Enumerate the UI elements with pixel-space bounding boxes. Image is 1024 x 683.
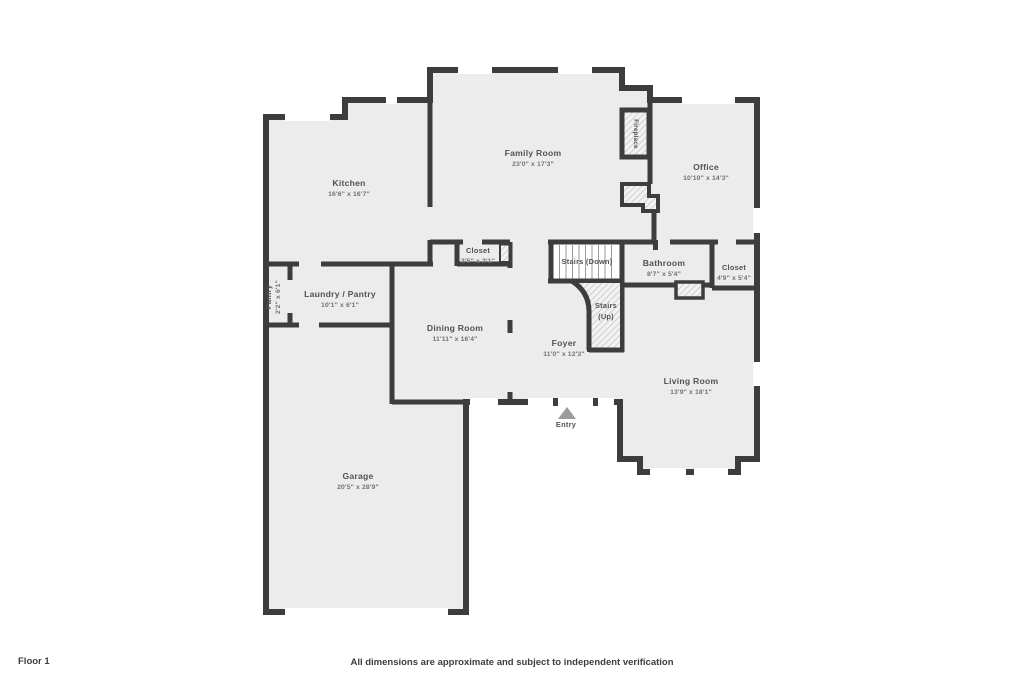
label-stairs-down: Stairs (Down)	[562, 257, 613, 266]
family-room-window-right	[558, 66, 592, 74]
label-text-fireplace: Fireplace	[632, 119, 639, 149]
kitchen-window	[285, 113, 330, 121]
label-text-bathroom: 8'7" x 5'4"	[647, 271, 681, 278]
closet-a-hatch-strip	[500, 245, 510, 263]
office-top-window	[682, 96, 735, 104]
label-text-closet-b: 4'9" x 5'4"	[717, 275, 751, 282]
entry-jamb-right	[593, 398, 598, 406]
label-fireplace: Fireplace	[632, 119, 639, 149]
label-text-pantry: 2'2" x 6'1"	[275, 280, 282, 314]
label-text-family-room: Family Room	[505, 148, 562, 158]
family-room-window-left	[458, 66, 492, 74]
office-right-window	[753, 208, 761, 233]
wall-stub-bath-door	[653, 240, 658, 250]
bathroom-hatch-box	[676, 282, 703, 298]
label-text-bathroom: Bathroom	[643, 258, 686, 268]
label-text-foyer: Foyer	[552, 338, 577, 348]
label-text-pantry: Pantry	[264, 284, 273, 309]
label-text-garage: 20'5" x 28'9"	[337, 484, 379, 491]
label-text-stairs-up: Stairs	[595, 301, 617, 310]
label-text-dining-room: Dining Room	[427, 323, 483, 333]
label-text-stairs-up: (Up)	[598, 312, 614, 321]
bay-window-left	[650, 468, 686, 476]
entry-arrow-icon	[558, 407, 576, 419]
label-text-family-room: 23'0" x 17'3"	[512, 161, 554, 168]
closet-a-door-gap	[463, 239, 482, 246]
bay-window-right	[694, 468, 728, 476]
label-text-closet-a: Closet	[466, 246, 490, 255]
label-text-dining-room: 11'11" x 16'4"	[432, 336, 477, 343]
label-text-kitchen: Kitchen	[332, 178, 365, 188]
label-text-laundry-pantry: 10'1" x 6'1"	[321, 302, 359, 309]
label-text-office: 10'10" x 14'3"	[683, 175, 729, 182]
living-right-window	[753, 362, 761, 386]
label-text-living-room: Living Room	[664, 376, 719, 386]
disclaimer-text: All dimensions are approximate and subje…	[0, 657, 1024, 668]
label-text-kitchen: 16'6" x 16'7"	[328, 191, 370, 198]
label-text-garage: Garage	[342, 471, 373, 481]
label-text-closet-b: Closet	[722, 263, 746, 272]
label-text-foyer: 11'0" x 12'3"	[543, 351, 585, 358]
garage-door-opening	[285, 608, 448, 616]
label-text-entry: Entry	[556, 420, 577, 429]
label-text-living-room: 13'9" x 18'1"	[670, 389, 712, 396]
entry-jamb-left	[553, 398, 558, 406]
label-text-laundry-pantry: Laundry / Pantry	[304, 289, 376, 299]
floor-plan: Kitchen16'6" x 16'7"Family Room23'0" x 1…	[0, 0, 1024, 683]
label-entry: Entry	[556, 420, 577, 429]
label-text-closet-a: 3'5" x 2'1"	[461, 258, 495, 265]
kitchen-upper-window	[386, 96, 397, 104]
label-text-office: Office	[693, 162, 719, 172]
dining-front-window	[470, 398, 498, 406]
label-text-stairs-down: Stairs (Down)	[562, 257, 613, 266]
entry-door-opening	[528, 398, 614, 406]
